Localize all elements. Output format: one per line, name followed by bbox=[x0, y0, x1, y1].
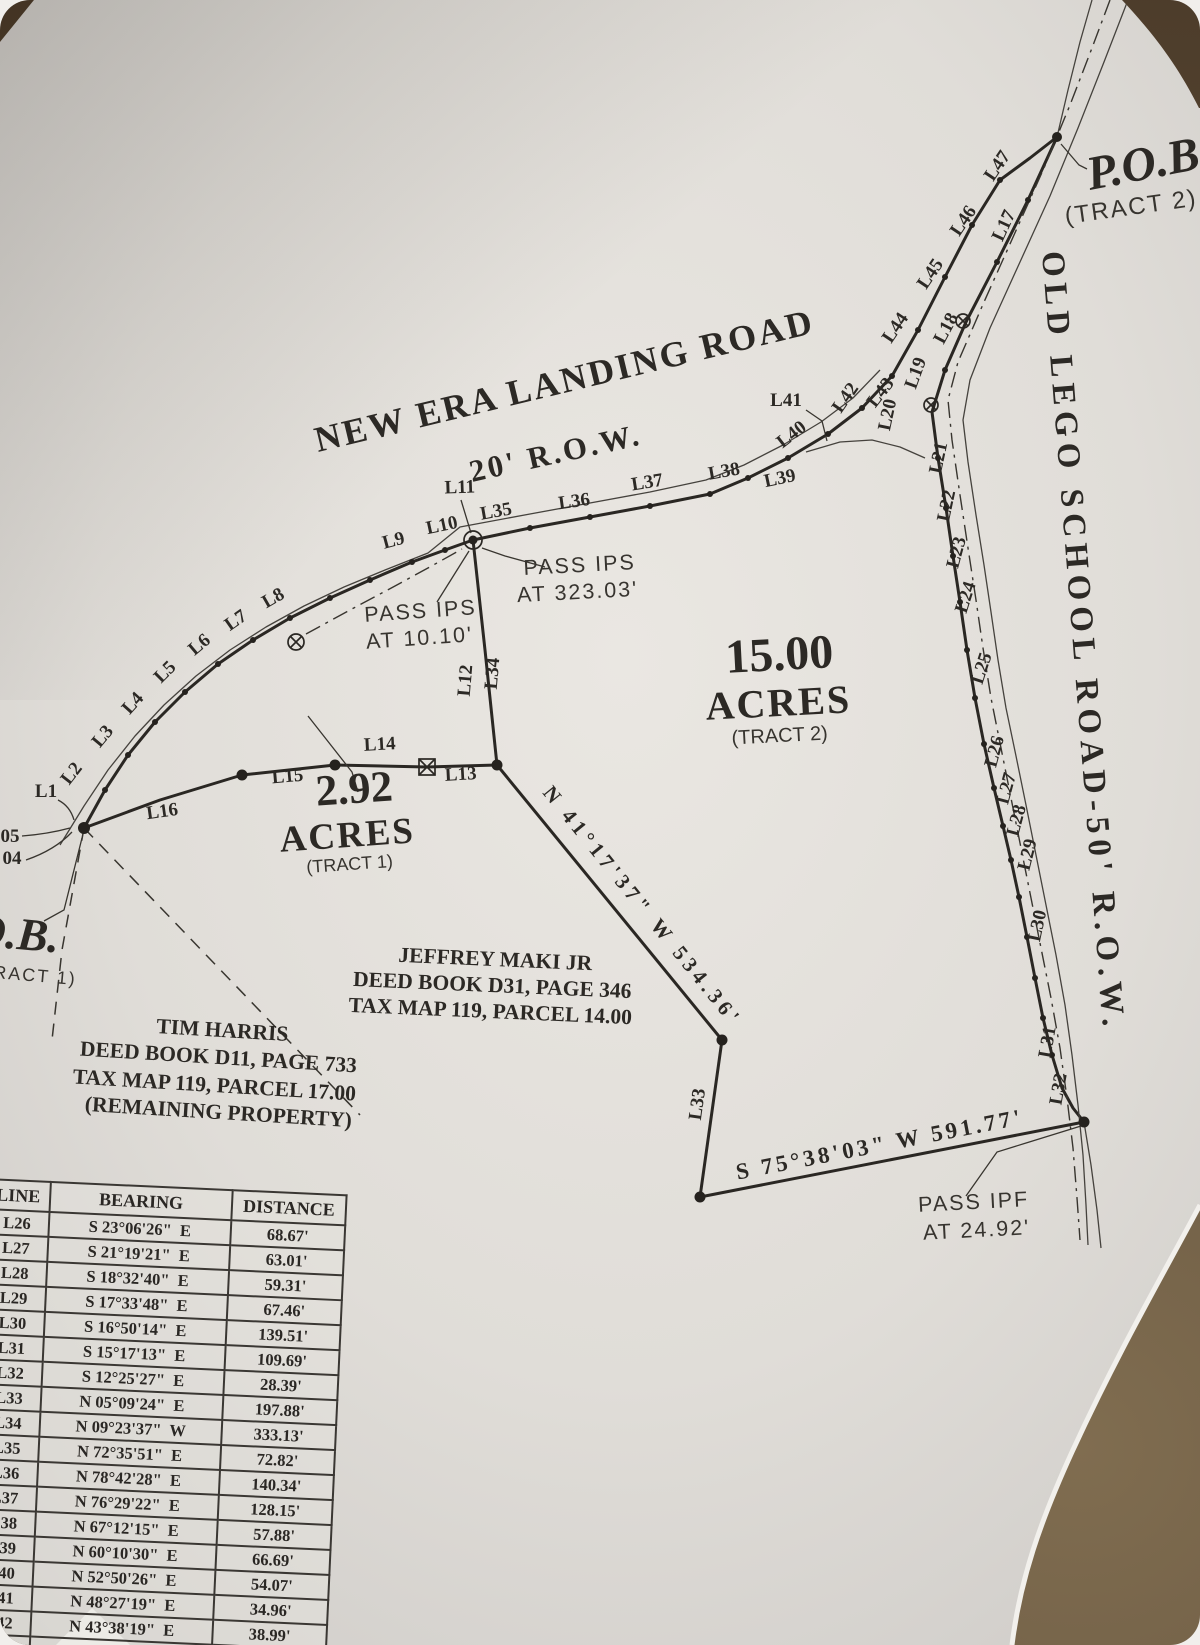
cell-line: L27 bbox=[0, 1234, 48, 1262]
cell-line: L33 bbox=[0, 1384, 42, 1412]
cell-line: L35 bbox=[0, 1434, 39, 1462]
svg-text:15.00: 15.00 bbox=[724, 625, 835, 684]
cell-line: L37 bbox=[0, 1484, 37, 1512]
cell-line: L38 bbox=[0, 1509, 36, 1537]
cell-line: L26 bbox=[0, 1209, 50, 1237]
edge-label-04: 04 bbox=[3, 848, 23, 869]
cell-line: L43 bbox=[0, 1634, 30, 1645]
svg-text:L15: L15 bbox=[271, 765, 304, 789]
edge-label-05: 05 bbox=[1, 826, 20, 847]
cell-line: L32 bbox=[0, 1359, 43, 1387]
svg-text:L1: L1 bbox=[35, 781, 57, 802]
cell-line: L31 bbox=[0, 1334, 44, 1362]
cell-line: L34 bbox=[0, 1409, 40, 1437]
cell-line: L40 bbox=[0, 1559, 34, 1587]
cell-distance: 38.99' bbox=[212, 1620, 327, 1645]
cell-line: L30 bbox=[0, 1309, 45, 1337]
svg-text:L34: L34 bbox=[481, 656, 505, 690]
cell-line: L36 bbox=[0, 1459, 38, 1487]
svg-text:L11: L11 bbox=[444, 476, 475, 498]
bearing-table: LINE BEARING DISTANCE L26S 23°06'26" E68… bbox=[0, 1178, 348, 1645]
pob-tract1-title: P.O.B. bbox=[0, 901, 62, 962]
svg-text:L36: L36 bbox=[557, 489, 591, 514]
svg-text:L16: L16 bbox=[145, 799, 179, 824]
cell-line: L39 bbox=[0, 1534, 35, 1562]
svg-text:L41: L41 bbox=[770, 390, 802, 411]
svg-text:2.92: 2.92 bbox=[314, 761, 394, 815]
cell-line: L42 bbox=[0, 1609, 31, 1637]
cell-line: L41 bbox=[0, 1584, 33, 1612]
survey-plat-photo: NEW ERA LANDING ROAD 20' R.O.W. OLD LEGO… bbox=[0, 0, 1200, 1645]
cell-line: L29 bbox=[0, 1284, 46, 1312]
svg-text:L12: L12 bbox=[454, 664, 478, 697]
svg-text:L33: L33 bbox=[685, 1087, 710, 1121]
cell-line: L28 bbox=[0, 1259, 47, 1287]
svg-text:L14: L14 bbox=[363, 733, 396, 756]
svg-text:L13: L13 bbox=[444, 763, 477, 786]
header-line: LINE bbox=[0, 1179, 51, 1212]
svg-text:ACRES: ACRES bbox=[704, 676, 852, 729]
